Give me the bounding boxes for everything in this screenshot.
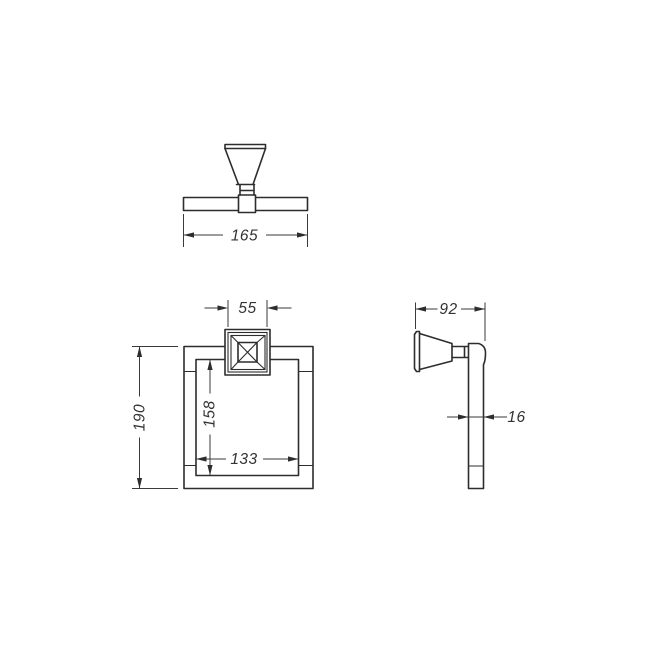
arrowhead-right [475,306,486,311]
arrowhead-left [416,306,427,311]
dim-label-inner-width: 133 [230,451,257,468]
dim-label-overall-height: 190 [132,404,149,431]
dimension-overall-height: 190 [132,347,179,489]
front-view: 190 158 133 55 [132,300,314,489]
front-view-mount-ornament [225,330,270,376]
arrowhead-left [484,414,495,419]
dimension-mount-width: 55 [205,300,292,327]
side-view-post-neck [452,347,469,358]
top-view: 165 [184,145,308,248]
side-view-wall-flange [415,332,420,372]
arrowhead-down [137,478,142,489]
dimension-bar-thickness: 16 [447,409,526,426]
top-view-post-cone [225,149,266,185]
top-view-mount-block [239,195,256,213]
side-view: 92 16 [415,301,526,489]
arrowhead-right [297,232,308,237]
dim-label-top-width: 165 [231,228,258,245]
arrowhead-left [184,232,195,237]
arrowhead-right [458,414,469,419]
dim-label-inner-height: 158 [202,400,219,427]
dim-label-mount-width: 55 [238,300,256,317]
towel-ring-dimension-drawing: 165 190 158 133 [0,0,663,663]
dim-label-depth: 92 [439,301,457,318]
dimension-top-width: 165 [184,214,308,247]
arrowhead-right [218,305,229,310]
top-view-cone-rim [225,145,266,149]
arrowhead-left [267,305,278,310]
side-view-ring-bar [469,344,486,489]
technical-drawing-canvas: 165 190 158 133 [0,0,663,663]
top-view-post-neck [240,185,254,196]
side-view-post-cone [420,334,453,370]
arrowhead-up [137,347,142,358]
dim-label-bar-thickness: 16 [507,409,525,426]
